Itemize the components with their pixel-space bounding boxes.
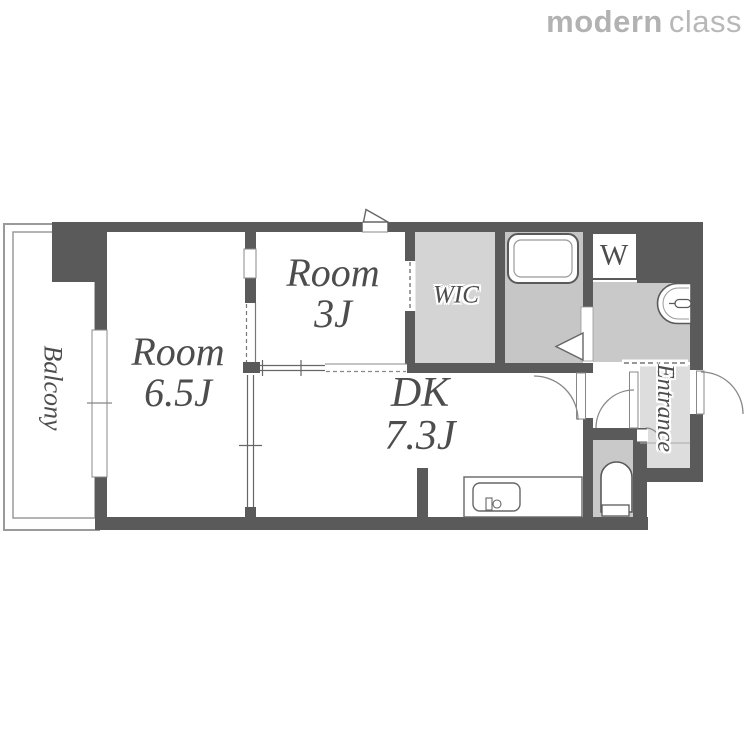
washbasin-faucet-icon <box>675 300 691 308</box>
wall <box>95 222 703 232</box>
toilet-tank-icon <box>602 505 629 516</box>
wall <box>637 222 703 283</box>
bathtub-icon <box>508 234 578 283</box>
dk-label-line1: DK <box>384 372 455 415</box>
entrance-door-leaf <box>697 371 705 414</box>
entrance-door-arc <box>701 372 743 414</box>
wall <box>245 232 256 250</box>
wall <box>593 428 638 440</box>
wall <box>690 363 703 370</box>
balcony-label: Balcony <box>39 345 66 430</box>
door-arc <box>534 376 578 420</box>
wall <box>690 413 703 468</box>
wall <box>405 232 415 262</box>
wall <box>95 517 648 530</box>
wall <box>583 363 593 373</box>
room-6-5j-label: Room 6.5J <box>131 332 224 414</box>
wall <box>690 283 703 363</box>
window <box>244 249 256 278</box>
wall <box>405 310 415 363</box>
door-gap <box>637 430 648 442</box>
floor-plan-drawing <box>0 0 750 750</box>
wall-opening <box>363 222 388 232</box>
door-arc <box>596 390 634 428</box>
wall <box>495 232 505 363</box>
kitchen-faucet-icon <box>486 498 492 510</box>
wall <box>95 232 107 330</box>
wall <box>95 477 107 520</box>
dk-label-line2: 7.3J <box>384 415 455 458</box>
room-3j-label-line1: Room <box>286 253 379 294</box>
wall <box>417 468 428 517</box>
wall <box>245 507 256 520</box>
room-3j-label: Room 3J <box>286 253 379 335</box>
vent-flag-icon <box>364 210 389 223</box>
wall <box>52 222 95 282</box>
room-6-5j-label-line1: Room <box>131 332 224 373</box>
wic-label: WIC <box>433 282 479 308</box>
room-3j-label-line2: 3J <box>286 294 379 335</box>
room-6-5j-label-line2: 6.5J <box>131 373 224 414</box>
door-leaf <box>630 372 639 428</box>
wall <box>245 277 256 303</box>
wall <box>640 468 703 482</box>
dk-label: DK 7.3J <box>384 372 455 458</box>
wall <box>583 418 593 520</box>
kitchen-knob-icon <box>493 500 501 508</box>
entrance-label: Entrance <box>653 364 677 452</box>
floor-plan-page: modernclass <box>0 0 750 750</box>
wall <box>243 362 260 373</box>
washer-label: W <box>600 241 628 272</box>
